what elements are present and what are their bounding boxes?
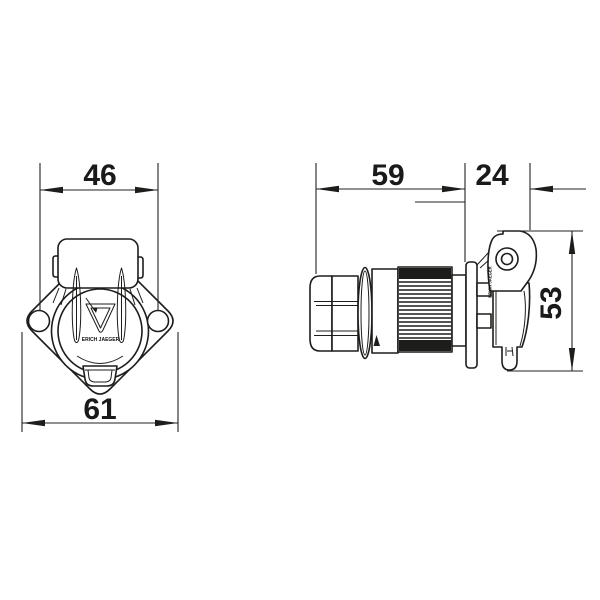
arrowhead-59-right [442, 186, 465, 192]
arrowhead-59-left [316, 186, 339, 192]
knurl-ribs [399, 282, 451, 338]
dim-label-24: 24 [475, 159, 509, 192]
arrowhead-46-right [135, 187, 158, 193]
dim-label-53: 53 [535, 286, 568, 319]
dim-label-59: 59 [371, 159, 404, 192]
flange-plate-side [466, 262, 477, 368]
latch-clip-lower [477, 314, 491, 328]
knurled-grip [398, 267, 452, 352]
technical-drawing: ERICH JAEGER [0, 0, 600, 600]
logo-text: ERICH JAEGER [82, 337, 120, 343]
neck [452, 275, 466, 346]
dim-label-46: 46 [83, 159, 116, 192]
gland-cap [310, 276, 332, 351]
dimension-lid-depth: 24 [475, 159, 586, 230]
side-view: ERICH JAEGER [310, 231, 536, 370]
arrowhead-61-left [22, 420, 45, 426]
arrowhead-46-left [40, 187, 63, 193]
seal-ring-outer [358, 268, 372, 359]
mounting-hole-right [148, 311, 169, 332]
socket-ring-inner [58, 289, 142, 373]
arrowhead-24-right [530, 186, 553, 192]
mounting-hole-left [29, 311, 50, 332]
arrowhead-53-top [569, 231, 575, 254]
lid-marking-text: ERICH JAEGER [488, 266, 493, 297]
front-view: ERICH JAEGER [27, 239, 173, 394]
drawing-canvas: ERICH JAEGER [0, 0, 600, 600]
arrowhead-53-bottom [569, 348, 575, 371]
arrowhead-61-right [155, 420, 178, 426]
knurl-band-top [399, 268, 451, 279]
dimension-body-length: 59 [316, 159, 465, 274]
knurl-band-bottom [399, 340, 451, 351]
gland-nut [332, 276, 358, 351]
hinge-pin-inner [502, 254, 513, 265]
dim-label-61: 61 [83, 393, 116, 426]
latch-tab [83, 366, 117, 386]
cover [58, 239, 138, 288]
